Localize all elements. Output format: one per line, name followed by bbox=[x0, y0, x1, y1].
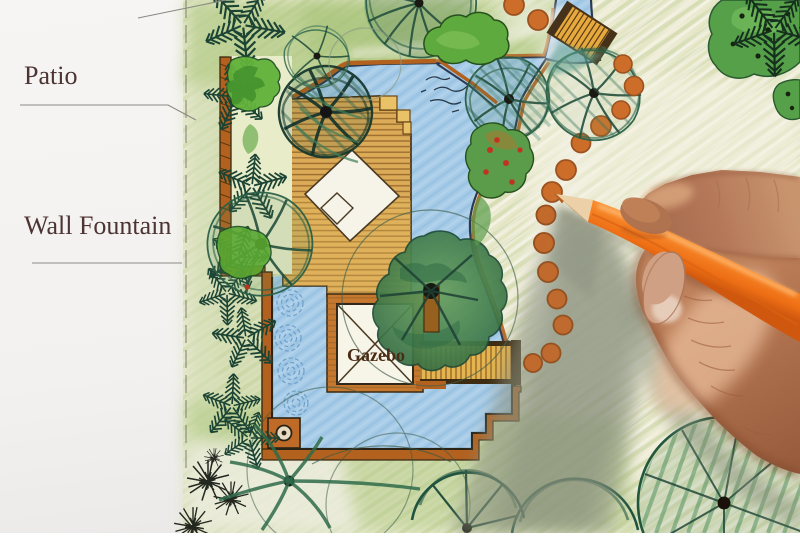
svg-text:Wall Fountain: Wall Fountain bbox=[24, 211, 171, 240]
svg-text:Patio: Patio bbox=[24, 61, 77, 90]
svg-text:Gazebo: Gazebo bbox=[347, 345, 405, 365]
